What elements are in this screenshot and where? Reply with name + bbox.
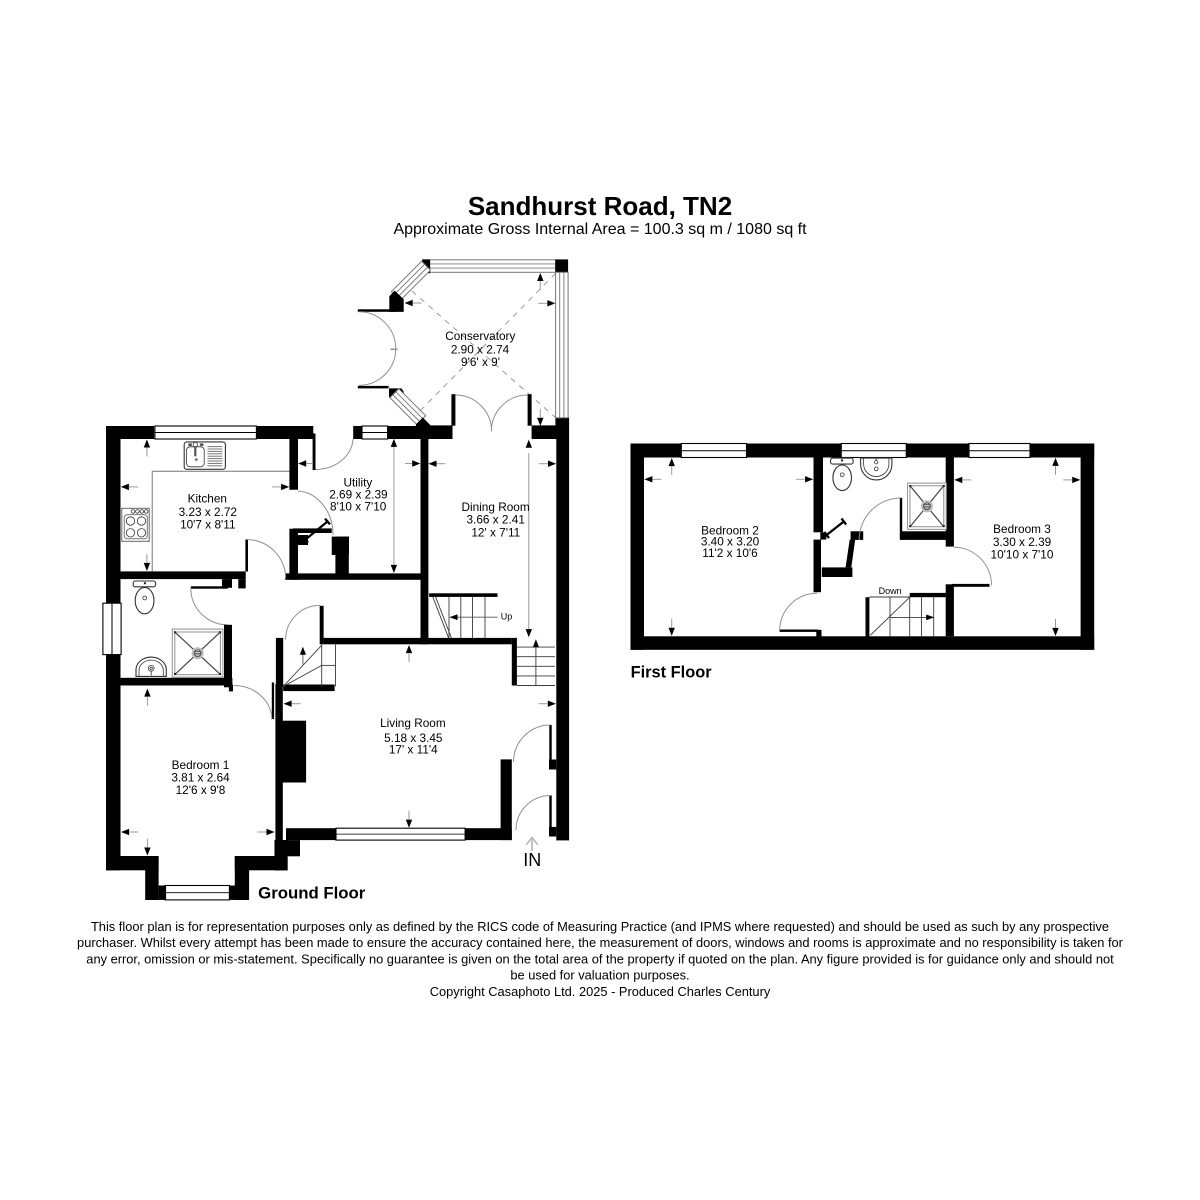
svg-text:Ground Floor: Ground Floor [258,883,366,902]
svg-text:12'6 x 9'8: 12'6 x 9'8 [176,783,226,797]
svg-text:Approximate Gross Internal Are: Approximate Gross Internal Area = 100.3 … [393,221,807,238]
svg-text:10'7 x 8'11: 10'7 x 8'11 [180,518,235,532]
svg-text:IN: IN [523,850,541,870]
svg-text:First Floor: First Floor [631,664,713,682]
svg-text:9'6' x 9': 9'6' x 9' [461,355,500,369]
svg-text:This floor plan is for represe: This floor plan is for representation pu… [91,919,1109,934]
svg-text:8'10 x 7'10: 8'10 x 7'10 [330,500,387,514]
svg-text:17' x 11'4: 17' x 11'4 [389,742,438,756]
svg-text:purchaser. Whilst every attemp: purchaser. Whilst every attempt has been… [77,935,1124,950]
svg-text:10'10 x 7'10: 10'10 x 7'10 [991,548,1054,562]
svg-text:be used for valuation purposes: be used for valuation purposes. [510,968,689,983]
svg-text:11'2 x 10'6: 11'2 x 10'6 [702,546,758,560]
svg-text:Down: Down [879,586,902,596]
svg-text:12' x 7'11: 12' x 7'11 [471,525,520,539]
svg-text:Sandhurst Road, TN2: Sandhurst Road, TN2 [468,191,732,221]
svg-text:Up: Up [501,612,513,622]
svg-text:Kitchen: Kitchen [188,492,227,506]
svg-text:any error, omission or mis-sta: any error, omission or mis-statement. Sp… [86,951,1114,966]
svg-text:Copyright Casaphoto Ltd. 2025: Copyright Casaphoto Ltd. 2025 - Produced… [430,984,771,999]
svg-text:Living Room: Living Room [380,716,446,730]
svg-text:Conservatory: Conservatory [445,329,515,343]
